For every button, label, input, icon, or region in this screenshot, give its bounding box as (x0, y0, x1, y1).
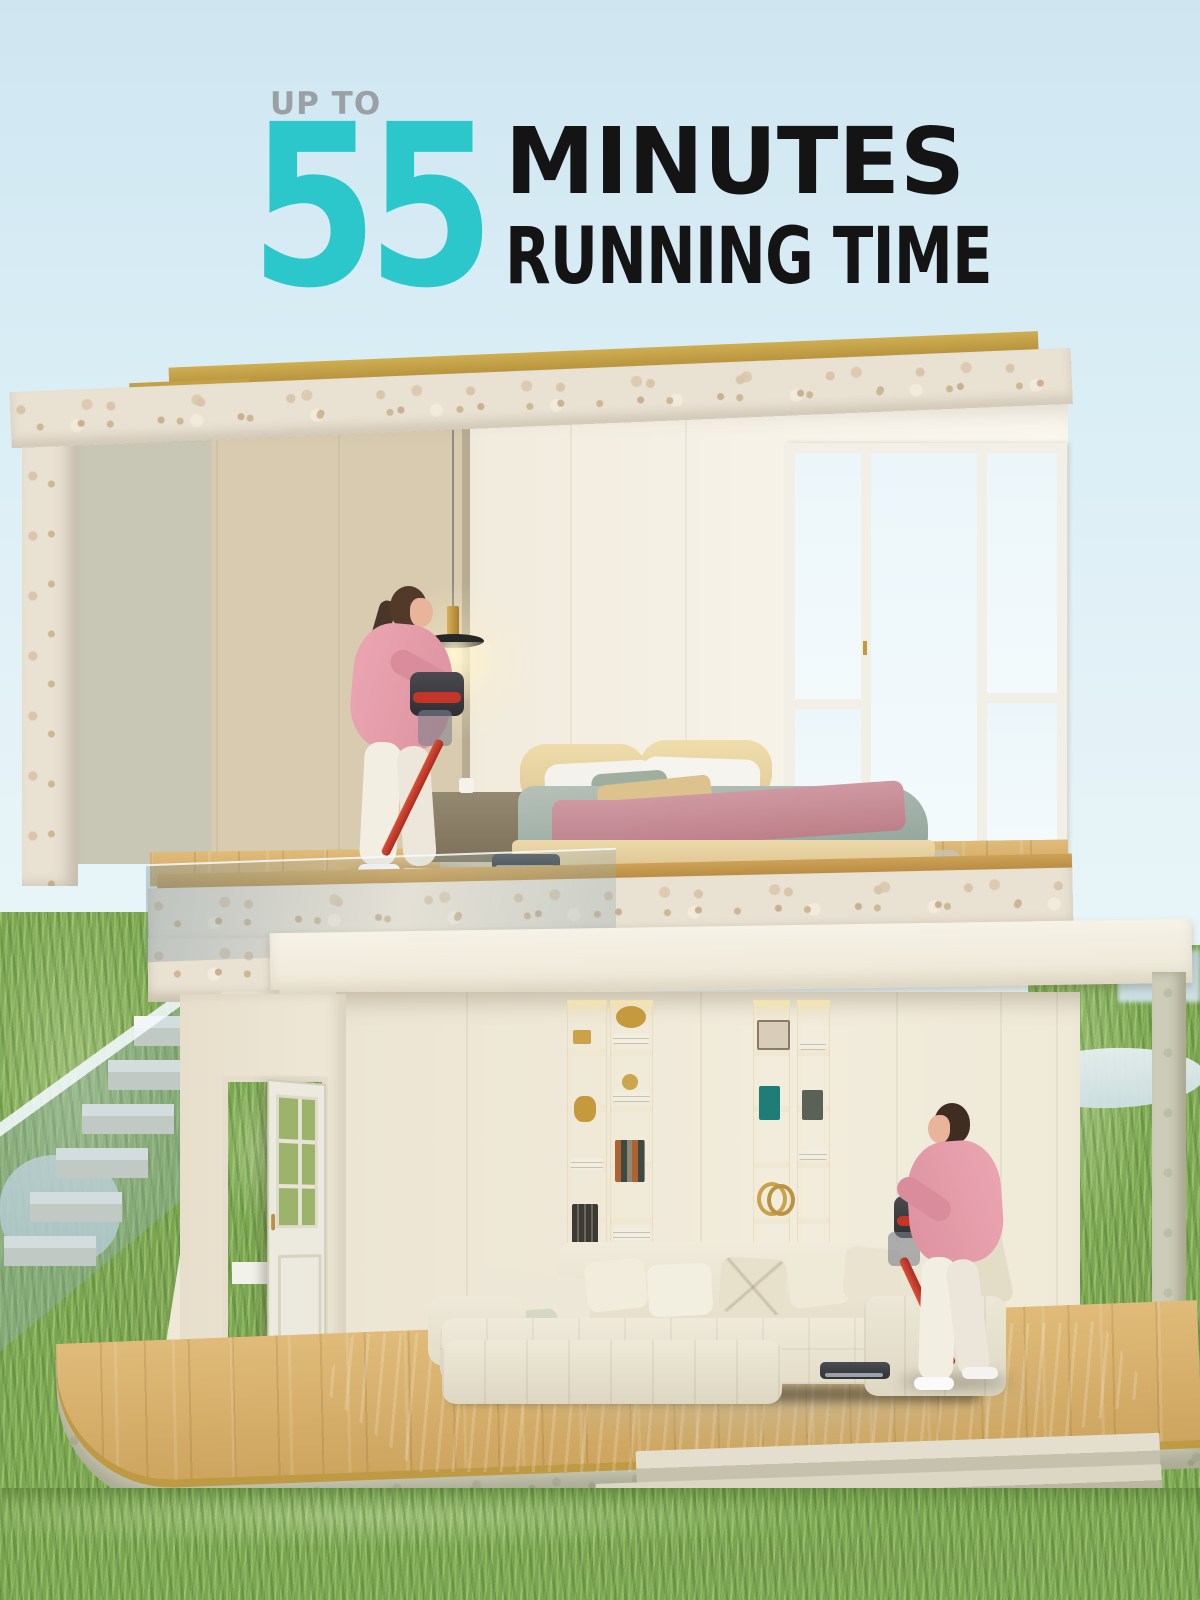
headline-number-55: 55 (250, 96, 484, 320)
shelf-gold-sculpture (616, 1006, 646, 1028)
shelf-book (802, 1090, 823, 1120)
door-leaf (267, 1079, 326, 1359)
sofa-pillow-tufted (718, 1256, 788, 1316)
door-handle (271, 1214, 275, 1231)
shelf-gold-branch (574, 1096, 596, 1122)
sofa-chaise-left (442, 1340, 782, 1404)
headline-words: MINUTES RUNNING TIME (505, 116, 1146, 296)
headline-line2: RUNNING TIME (505, 218, 992, 296)
window-handle (863, 641, 867, 655)
woman-living-shoe (962, 1367, 998, 1379)
window-pane-right-lower (987, 703, 1057, 851)
door-lower-panel (278, 1254, 321, 1346)
woman-living-shoe (914, 1377, 954, 1390)
shelf-gold-ball (622, 1074, 638, 1090)
shelf-books-row (615, 1140, 645, 1182)
woman-living (880, 1095, 1040, 1390)
shelf-book-stack (799, 1150, 827, 1160)
shelf-book-stack (571, 1158, 603, 1170)
headline-line1: MINUTES (505, 116, 1133, 208)
window-pane-left (795, 453, 861, 699)
shelf-book-stack (800, 1040, 826, 1050)
upper-left-column (22, 398, 78, 886)
woman-living-face (928, 1115, 950, 1143)
window-pane-right (987, 453, 1057, 693)
shelf-gold-box (573, 1030, 591, 1044)
woman-bedroom-face (410, 598, 433, 627)
door-glass-grid (276, 1094, 318, 1228)
sofa-pillow (584, 1257, 649, 1313)
foreground-lawn (0, 1488, 1200, 1600)
shelf-picture-frame (757, 1020, 790, 1050)
lower-right-column (1152, 972, 1186, 1344)
vacuum-bedroom-red-ring (413, 692, 461, 703)
vacuum-living-roller (825, 1373, 883, 1377)
shelf-book-stack (613, 1092, 650, 1102)
shelf-teal-book (759, 1086, 780, 1120)
advertisement-canvas: UP TO 55 MINUTES RUNNING TIME (0, 0, 1200, 1600)
shelf-book-stack (613, 1034, 649, 1044)
woman-bedroom-leg (359, 741, 402, 867)
sofa-pillow (647, 1262, 714, 1317)
